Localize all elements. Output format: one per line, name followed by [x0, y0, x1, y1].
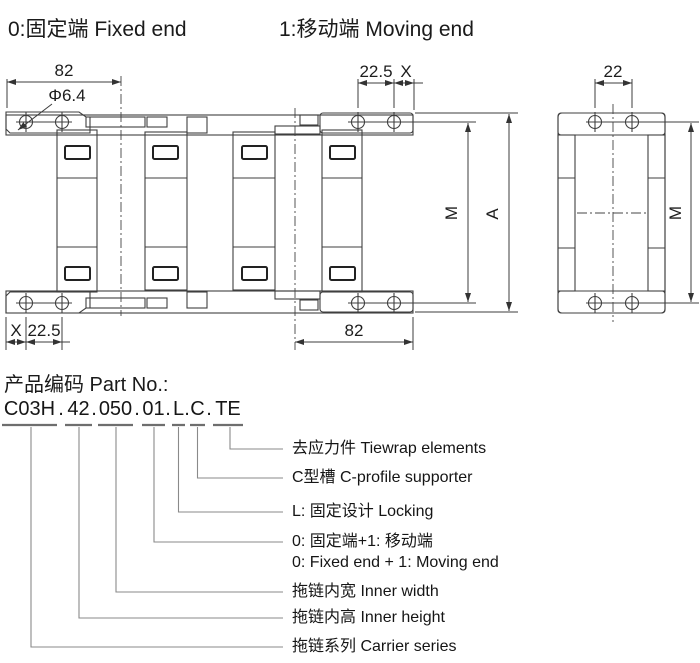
dimensions — [6, 79, 691, 350]
dim-x-bottom: X — [10, 321, 21, 340]
code-segment-inner-width: 050 — [98, 398, 133, 420]
label-tiewrap-elements: 去应力件 Tiewrap elements — [292, 439, 486, 459]
code-separator: . — [164, 398, 172, 420]
label-inner-width: 拖链内宽 Inner width — [292, 582, 439, 602]
catalog-drawing-page: { "header": { "fixed_end": "0:固定端 Fixed … — [0, 0, 700, 663]
code-separator: . — [133, 398, 141, 420]
label-carrier-series: 拖链系列 Carrier series — [292, 637, 456, 657]
label-end-type-en: 0: Fixed end + 1: Moving end — [292, 553, 499, 573]
dim-width-top: 82 — [55, 61, 74, 80]
dim-inner-height-m: M — [442, 206, 461, 220]
code-separator: . — [90, 398, 98, 420]
crossbar-slots — [65, 146, 355, 280]
dim-side-inner-height-m: M — [666, 206, 685, 220]
code-segment-tiewrap: TE — [213, 398, 243, 420]
fixed-end-legend: 0:固定端 Fixed end — [8, 13, 187, 43]
moving-end-legend: 1:移动端 Moving end — [279, 13, 474, 43]
label-inner-height: 拖链内高 Inner height — [292, 608, 445, 628]
dim-x-top: X — [400, 62, 411, 81]
code-separator: . — [57, 398, 65, 420]
code-segment-series: C03H — [2, 398, 57, 420]
code-separator: . — [205, 398, 213, 420]
part-number-title: 产品编码 Part No.: — [4, 368, 168, 397]
code-segment-c-profile: C — [190, 398, 205, 420]
moving-end-bracket-bottom — [320, 292, 413, 312]
dim-outer-height-a: A — [483, 208, 502, 220]
mounting-holes — [16, 112, 476, 313]
dim-pitch-top: 22.5 — [359, 62, 392, 81]
part-number-leader-lines — [31, 427, 283, 647]
main-view — [6, 76, 476, 350]
label-end-type-cn: 0: 固定端+1: 移动端 — [292, 532, 433, 552]
dim-width-bottom: 82 — [345, 321, 364, 340]
dim-side-pitch: 22 — [604, 62, 623, 81]
dim-pitch-bottom: 22.5 — [27, 321, 60, 340]
code-segment-inner-height: 42 — [65, 398, 92, 420]
dim-hole-diameter: Φ6.4 — [48, 86, 85, 105]
label-c-profile: C型槽 C-profile supporter — [292, 468, 473, 488]
code-segment-end-type: 01 — [142, 398, 165, 420]
label-locking: L: 固定设计 Locking — [292, 502, 433, 522]
